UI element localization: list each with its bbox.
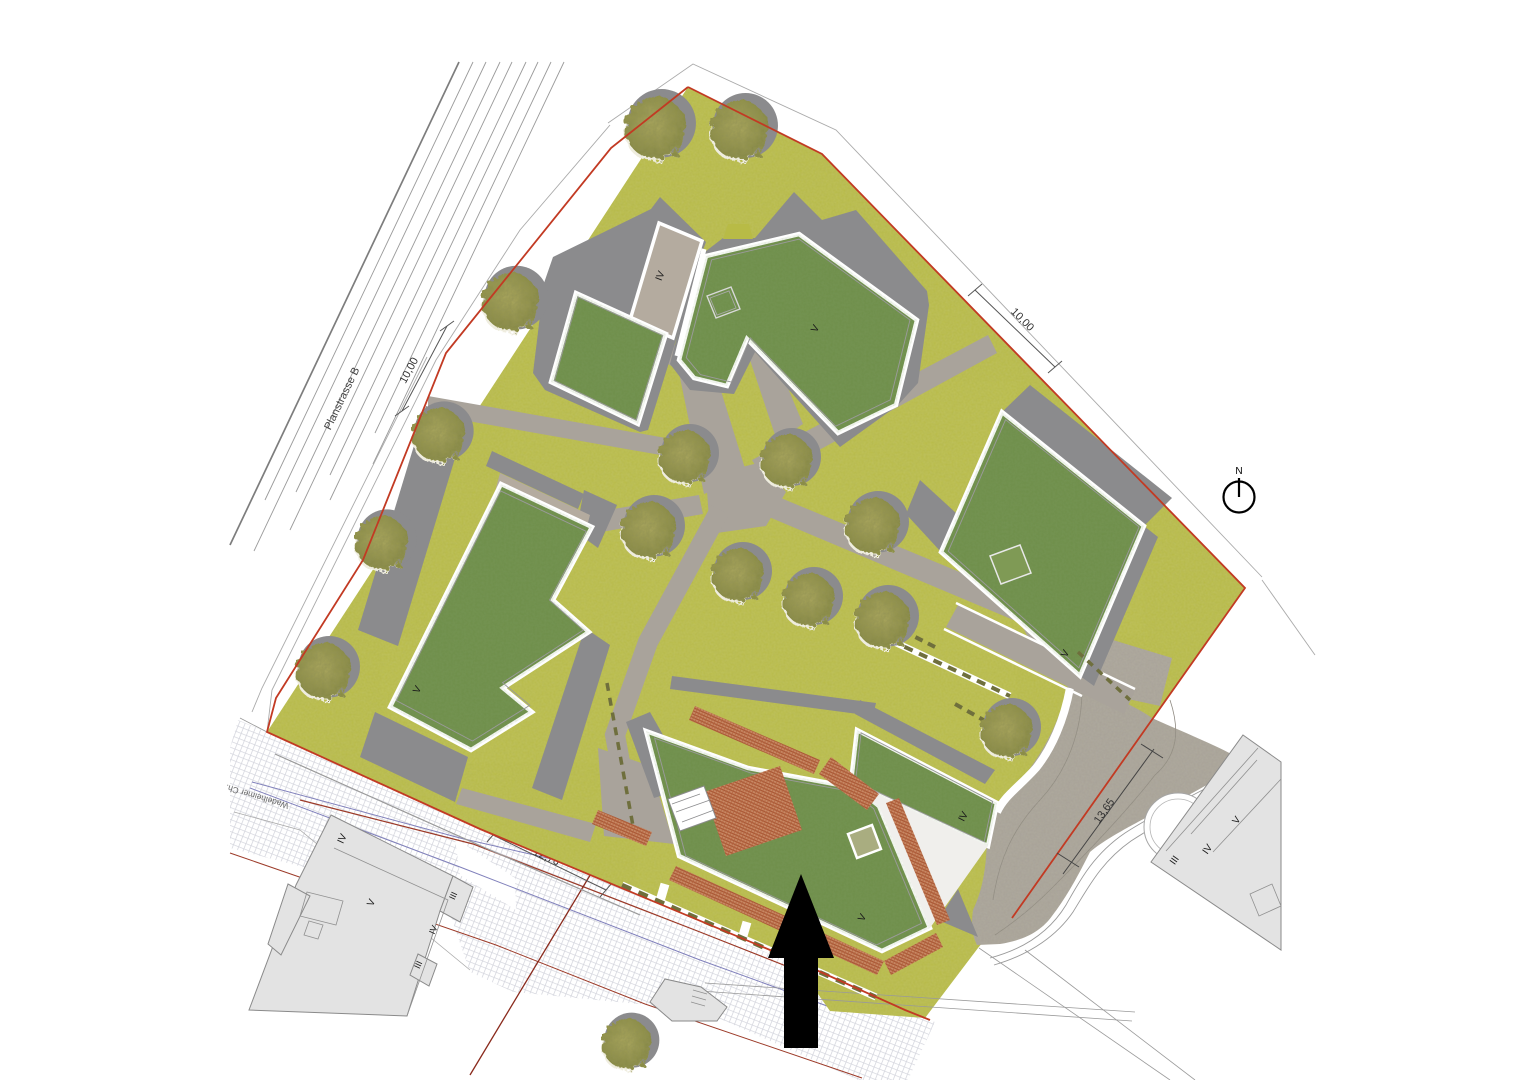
svg-text:N: N <box>1235 466 1242 477</box>
